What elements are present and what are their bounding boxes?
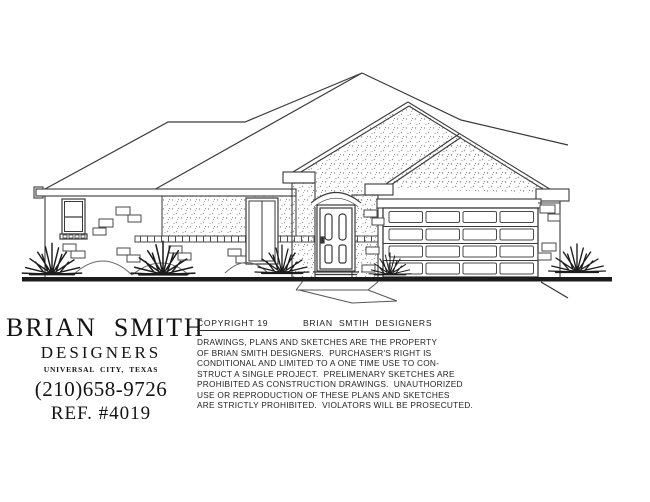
door-handle [321, 237, 324, 243]
garage-header-band [377, 199, 541, 208]
ground-line [22, 277, 612, 282]
copyright-notice: DRAWINGS, PLANS AND SKETCHES ARE THE PRO… [197, 337, 457, 411]
notice-line: OF BRIAN SMITH DESIGNERS. PURCHASER'S RI… [197, 348, 457, 359]
bush [549, 244, 606, 272]
notice-line: USE OR REPRODUCTION OF THESE PLANS AND S… [197, 390, 457, 401]
left-window [60, 199, 87, 239]
sidelight-window [246, 198, 278, 264]
door-lite [325, 245, 332, 263]
firm-phone: (210)658-9726 [6, 377, 196, 401]
firm-location: UNIVERSAL CITY, TEXAS [6, 365, 196, 375]
door-lite [339, 245, 346, 263]
scanned-drawing-page: BRIAN SMITH DESIGNERS UNIVERSAL CITY, TE… [0, 0, 650, 502]
garage [362, 199, 560, 277]
copyright-label: COPYRIGHT 19 [197, 318, 268, 328]
notice-line: STRUCT A SINGLE PROJECT. PRELIMENARY SKE… [197, 369, 457, 380]
copyright-header: COPYRIGHT 19 BRIAN SMTIH DESIGNERS [197, 317, 410, 331]
notice-line: ARE STRICTLY PROHIBITED. VIOLATORS WILL … [197, 400, 457, 411]
walkway [296, 281, 397, 303]
copyright-owner: BRIAN SMTIH DESIGNERS [303, 318, 432, 328]
house-elevation-drawing [0, 0, 650, 312]
notice-line: PROHIBITED AS CONSTRUCTION DRAWINGS. UNA… [197, 379, 457, 390]
copyright-block: COPYRIGHT 19 BRIAN SMTIH DESIGNERS DRAWI… [197, 317, 457, 411]
door-lite [339, 214, 346, 240]
firm-reference: REF. #4019 [6, 403, 196, 425]
garage-door [383, 208, 538, 277]
eave-fascia [36, 189, 296, 196]
front-door [313, 205, 359, 275]
notice-line: DRAWINGS, PLANS AND SKETCHES ARE THE PRO… [197, 337, 457, 348]
designer-title-block: BRIAN SMITH DESIGNERS UNIVERSAL CITY, TE… [6, 314, 196, 425]
firm-name: BRIAN SMITH [6, 314, 196, 342]
driveway-edge [541, 282, 568, 298]
notice-line: CONDITIONAL AND LIMITED TO A ONE TIME US… [197, 358, 457, 369]
firm-subtitle: DESIGNERS [6, 343, 196, 362]
door-lite [325, 214, 332, 240]
